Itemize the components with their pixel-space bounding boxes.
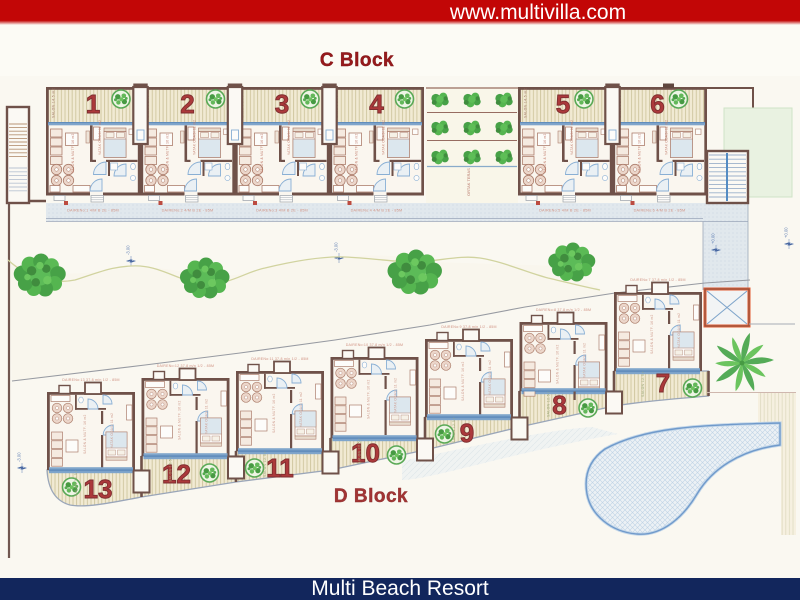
svg-text:Multi Beach Resort: Multi Beach Resort (311, 577, 489, 600)
svg-text:C Block: C Block (320, 50, 394, 71)
svg-text:www.multivilla.com: www.multivilla.com (449, 1, 626, 24)
